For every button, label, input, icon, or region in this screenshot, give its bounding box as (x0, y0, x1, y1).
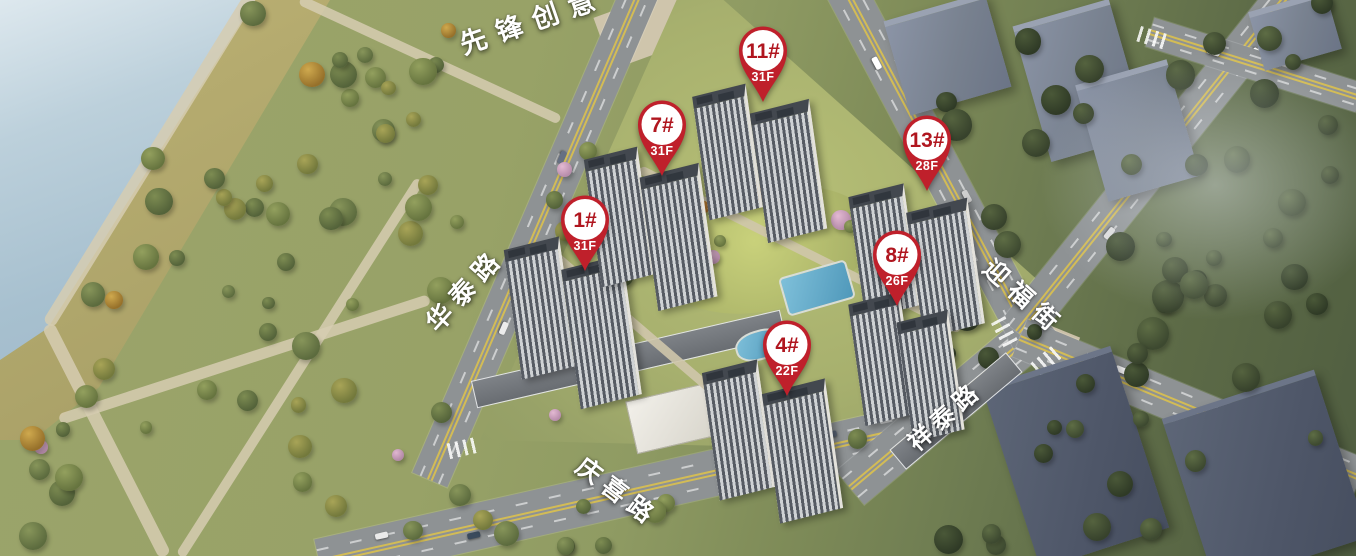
tree (494, 521, 519, 546)
tree (1140, 518, 1162, 540)
tree (1107, 471, 1133, 497)
tree (141, 147, 164, 170)
tree (557, 537, 574, 554)
tree (381, 81, 395, 95)
tree (1022, 129, 1050, 157)
tree (1133, 411, 1149, 427)
tree (1124, 362, 1149, 387)
tree (1281, 264, 1308, 291)
tree (93, 358, 115, 380)
pin-floors: 31F (751, 70, 774, 84)
car (467, 531, 481, 540)
tree (418, 175, 438, 195)
tree (277, 253, 295, 271)
tree (262, 297, 275, 310)
tree (1073, 103, 1094, 124)
tree (237, 390, 259, 412)
tree (1066, 420, 1084, 438)
tree (1264, 301, 1292, 329)
tree (431, 402, 452, 423)
pin-number: 11# (746, 40, 780, 63)
tree (222, 285, 236, 299)
tree (197, 380, 217, 400)
tree (245, 198, 264, 217)
tree (259, 323, 277, 341)
tree (1047, 420, 1062, 435)
tree (145, 188, 172, 215)
building-pin-4[interactable]: 4# 22F (759, 317, 815, 397)
tree (299, 62, 325, 88)
car (871, 56, 882, 70)
tree (332, 52, 348, 68)
tree (1180, 271, 1208, 299)
tree (1257, 26, 1282, 51)
building-pin-8[interactable]: 8# 26F (869, 227, 925, 307)
tree (934, 525, 963, 554)
pin-number: 1# (573, 209, 597, 232)
tree (291, 397, 307, 413)
tree (1232, 363, 1261, 392)
tree (1156, 232, 1172, 248)
tree (409, 58, 437, 86)
tree (405, 194, 432, 221)
tree (557, 162, 572, 177)
tree (319, 207, 343, 231)
tree (240, 1, 266, 27)
tree (392, 449, 404, 461)
tree (1278, 189, 1305, 216)
tree (1015, 28, 1041, 54)
tree (981, 204, 1007, 230)
tree (1106, 232, 1135, 261)
tree (81, 282, 105, 306)
pin-floors: 31F (573, 239, 596, 253)
tree (357, 47, 373, 63)
aerial-site-plan: 先锋创意 华泰路 庆喜路 祥泰路 迎福街 1# 31F 7# 31F 11# 3… (0, 0, 1356, 556)
tree (1034, 444, 1053, 463)
pin-floors: 26F (885, 274, 908, 288)
tree (1263, 228, 1283, 248)
tree (292, 332, 320, 360)
tree (133, 244, 158, 269)
tree (140, 421, 153, 434)
tree (473, 510, 493, 530)
pin-number: 4# (775, 334, 799, 357)
tree (266, 202, 290, 226)
tree (1206, 250, 1222, 266)
pin-floors: 31F (650, 144, 673, 158)
tree (288, 435, 311, 458)
tree (406, 112, 421, 127)
tree (1308, 430, 1324, 446)
tree (297, 154, 318, 175)
pin-floors: 28F (915, 159, 938, 173)
tree (378, 172, 393, 187)
tree (376, 124, 395, 143)
building-pin-7[interactable]: 7# 31F (634, 97, 690, 177)
tree (341, 89, 358, 106)
tree (449, 484, 471, 506)
pin-number: 13# (909, 129, 944, 152)
tree (403, 521, 423, 541)
tree (331, 378, 357, 404)
pin-number: 7# (650, 114, 674, 137)
tree (714, 235, 726, 247)
area-label: 先锋创意 (454, 0, 610, 62)
tree (1166, 60, 1195, 89)
tree (325, 495, 347, 517)
car (498, 321, 509, 335)
building-pin-1[interactable]: 1# 31F (557, 192, 613, 272)
tree (1250, 79, 1279, 108)
tree (1127, 343, 1148, 364)
tree (29, 459, 50, 480)
tree (1321, 166, 1339, 184)
tree (1224, 146, 1251, 173)
tree (293, 472, 312, 491)
building-pin-13[interactable]: 13# 28F (899, 112, 955, 192)
tree (55, 464, 83, 492)
tree (398, 221, 423, 246)
tree (1306, 293, 1328, 315)
tree (169, 250, 185, 266)
tree (256, 175, 273, 192)
tree (105, 291, 123, 309)
tree (1083, 513, 1111, 541)
tree (1185, 154, 1208, 177)
tree (56, 422, 71, 437)
tree (1203, 32, 1226, 55)
tree (982, 524, 1002, 544)
tree (19, 522, 47, 550)
car (375, 531, 389, 540)
tree (204, 168, 225, 189)
tree (595, 537, 612, 554)
tree (576, 499, 592, 515)
tree (450, 215, 464, 229)
tree (1318, 115, 1339, 136)
tree (20, 426, 45, 451)
pin-number: 8# (885, 244, 909, 267)
pin-floors: 22F (775, 364, 798, 378)
building-pin-11[interactable]: 11# 31F (735, 23, 791, 103)
tree (346, 298, 359, 311)
tree (848, 429, 867, 448)
